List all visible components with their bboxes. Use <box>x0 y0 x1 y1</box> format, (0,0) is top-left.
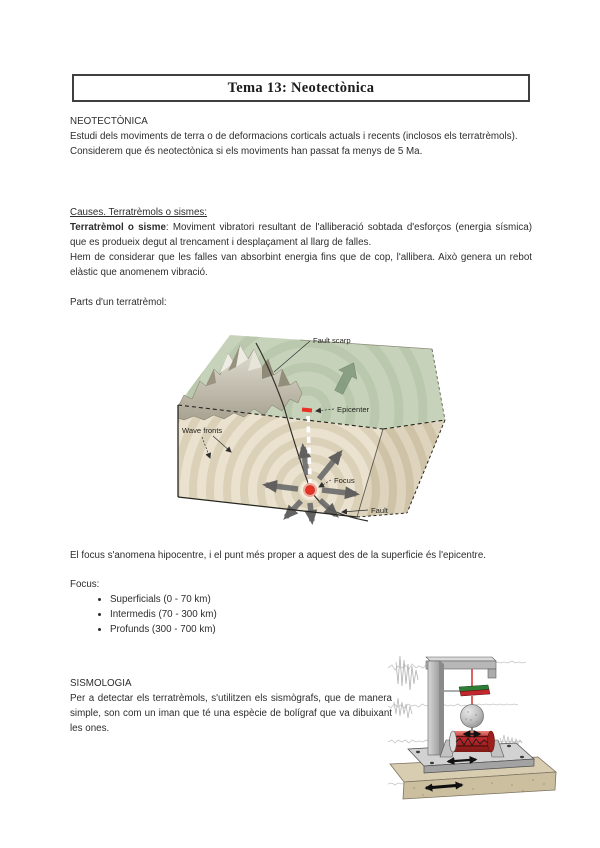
pendulum-mass <box>461 705 484 728</box>
label-fault-scarp: Fault scarp <box>313 336 351 345</box>
causes-heading: Causes. Terratrèmols o sismes: <box>70 207 207 218</box>
causes-definition-para: Terratrèmol o sisme: Moviment vibratori … <box>70 220 532 250</box>
neotectonica-para1: Estudi dels moviments de terra o de defo… <box>70 129 532 144</box>
parts-label: Parts d'un terratrèmol: <box>70 295 532 310</box>
sismologia-para: Per a detectar els terratrèmols, s'utili… <box>70 691 392 736</box>
label-wave-fronts: Wave fronts <box>182 426 222 435</box>
list-item: Intermedis (70 - 300 km) <box>110 607 532 622</box>
label-epicenter: Epicenter <box>337 405 370 414</box>
earthquake-diagram: Fault scarp Epicenter Wave fronts Focus … <box>170 323 450 528</box>
neotectonica-heading: NEOTECTÒNICA <box>70 114 532 129</box>
neotectonica-para2: Considerem que és neotectònica si els mo… <box>70 144 532 159</box>
list-item: Superficials (0 - 70 km) <box>110 592 532 607</box>
document-page: Tema 13: Neotectònica NEOTECTÒNICA Estud… <box>0 0 600 848</box>
focus-dot <box>306 486 315 495</box>
causes-para2: Hem de considerar que les falles van abs… <box>70 250 532 280</box>
page-title: Tema 13: Neotectònica <box>228 80 375 97</box>
focus-list-label: Focus: <box>70 577 532 592</box>
magnet <box>459 685 490 696</box>
list-item: Profunds (300 - 700 km) <box>110 622 532 637</box>
sismologia-heading: SISMOLOGIA <box>70 676 392 691</box>
label-focus: Focus <box>334 476 355 485</box>
focus-depth-list: Superficials (0 - 70 km) Intermedis (70 … <box>70 592 532 638</box>
recording-drum <box>450 731 495 752</box>
title-box: Tema 13: Neotectònica <box>72 74 530 102</box>
section-neotectonica: NEOTECTÒNICA Estudi dels moviments de te… <box>70 114 532 159</box>
section-focus: El focus s'anomena hipocentre, i el punt… <box>70 548 532 638</box>
section-causes: Causes. Terratrèmols o sismes: Terratrèm… <box>70 205 532 310</box>
seismograph-illustration <box>388 644 563 816</box>
focus-para: El focus s'anomena hipocentre, i el punt… <box>70 548 532 563</box>
causes-term: Terratrèmol o sisme <box>70 222 166 233</box>
label-fault: Fault <box>371 506 389 515</box>
section-sismologia: SISMOLOGIA Per a detectar els terratrèmo… <box>70 676 392 736</box>
